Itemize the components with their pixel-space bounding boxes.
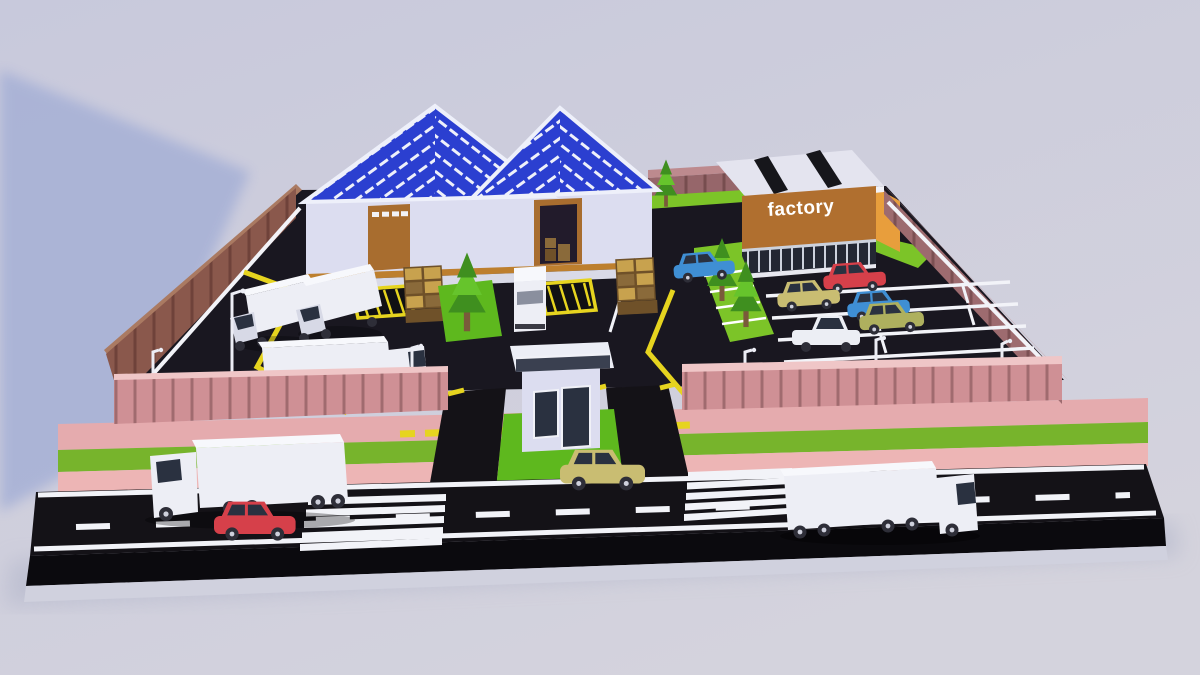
guard-house-door [562, 386, 590, 448]
factory-sign: factory [742, 186, 876, 250]
guard-house [510, 342, 614, 452]
warehouse-door-open [534, 198, 582, 266]
factory-sign-label: factory [767, 196, 835, 221]
scene-render: factory [0, 0, 1200, 675]
loading-pad-2 [540, 280, 596, 314]
yard-van [514, 266, 546, 332]
guard-house-window [534, 390, 558, 438]
warehouse-door-left [368, 204, 410, 271]
crate-stack-right [615, 258, 658, 315]
factory-diorama-svg: factory [0, 0, 1200, 675]
